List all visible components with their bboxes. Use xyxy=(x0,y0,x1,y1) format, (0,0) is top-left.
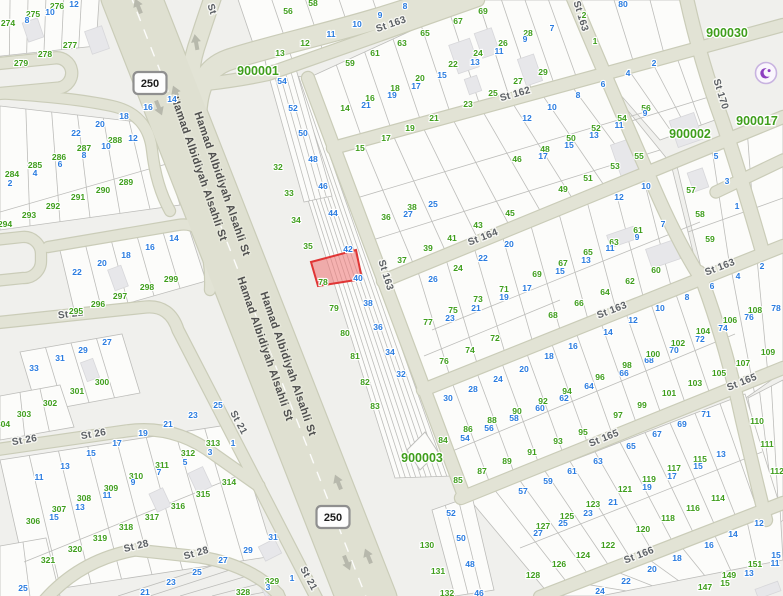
parcel-number-label: 13 xyxy=(275,48,285,58)
house-number-label: 71 xyxy=(701,409,711,419)
parcel-number-label: 25 xyxy=(488,88,498,98)
route-shield-label: 250 xyxy=(324,512,342,524)
house-number-label: 13 xyxy=(716,449,726,459)
house-number-label: 10 xyxy=(641,181,651,191)
parcel-number-label: 22 xyxy=(448,59,458,69)
parcel-number-label: 289 xyxy=(119,177,134,187)
parcel-number-label: 39 xyxy=(423,243,433,253)
parcel-number-label: 328 xyxy=(236,587,251,596)
house-number-label: 25 xyxy=(192,567,202,577)
parcel-number-label: 107 xyxy=(736,358,751,368)
house-number-label: 57 xyxy=(518,486,528,496)
house-number-label: 29 xyxy=(78,345,88,355)
house-number-label: 6 xyxy=(601,79,606,89)
parcel-number-label: 87 xyxy=(477,466,487,476)
house-number-label: 15 xyxy=(437,70,447,80)
parcel-number-label: 15 xyxy=(720,578,730,588)
parcel-number-label: 128 xyxy=(526,570,541,580)
parcel-number-label: 294 xyxy=(0,219,12,229)
house-number-label: 15 xyxy=(564,140,574,150)
house-number-label: 19 xyxy=(499,292,509,302)
parcel-number-label: 84 xyxy=(438,435,448,445)
parcel-number-label: 89 xyxy=(502,456,512,466)
parcel-number-label: 21 xyxy=(429,113,439,123)
house-number-label: 42 xyxy=(343,244,353,254)
parcel-number-label: 35 xyxy=(303,241,313,251)
house-number-label: 14 xyxy=(169,233,179,243)
parcel-number-label: 17 xyxy=(381,133,391,143)
house-number-label: 31 xyxy=(268,532,278,542)
parcel-number-label: 59 xyxy=(345,58,355,68)
zone-number-label: 900030 xyxy=(706,26,748,40)
house-number-label: 8 xyxy=(576,90,581,100)
house-number-label: 18 xyxy=(119,111,129,121)
house-number-label: 25 xyxy=(213,400,223,410)
parcel-number-label: 99 xyxy=(637,400,647,410)
parcel-number-label: 77 xyxy=(423,317,433,327)
parcel-number-label: 320 xyxy=(68,544,83,554)
house-number-label: 13 xyxy=(60,461,70,471)
parcel-number-label: 279 xyxy=(14,58,29,68)
parcel-number-label: 14 xyxy=(340,103,350,113)
house-number-label: 78 xyxy=(771,303,781,313)
house-number-label: 8 xyxy=(82,150,87,160)
parcel-number-label: 12 xyxy=(300,38,310,48)
parcel-number-label: 72 xyxy=(490,333,500,343)
parcel-number-label: 304 xyxy=(0,419,10,429)
house-number-label: 44 xyxy=(328,208,338,218)
house-number-label: 17 xyxy=(538,151,548,161)
mosque-icon-part xyxy=(768,69,771,72)
house-number-label: 11 xyxy=(494,46,503,56)
parcel-number-label: 53 xyxy=(610,161,620,171)
parcel-number-label: 106 xyxy=(723,315,738,325)
parcel-number-label: 43 xyxy=(473,220,483,230)
house-number-label: 1 xyxy=(231,438,236,448)
parcel-number-label: 318 xyxy=(119,522,134,532)
parcel-number-label: 80 xyxy=(340,328,350,338)
house-number-label: 34 xyxy=(385,347,395,357)
parcel-number-label: 293 xyxy=(22,210,37,220)
parcel-number-label: 68 xyxy=(548,310,558,320)
house-number-label: 6 xyxy=(58,159,63,169)
parcel-number-label: 131 xyxy=(431,566,446,576)
parcel-number-label: 81 xyxy=(350,351,360,361)
house-number-label: 10 xyxy=(655,303,665,313)
house-number-label: 13 xyxy=(75,502,85,512)
house-number-label: 36 xyxy=(373,322,383,332)
house-number-label: 40 xyxy=(353,273,363,283)
house-number-label: 16 xyxy=(145,242,155,252)
parcel-number-label: 114 xyxy=(711,493,725,503)
house-number-label: 65 xyxy=(626,441,636,451)
parcel-number-label: 2 xyxy=(582,10,587,20)
house-number-label: 23 xyxy=(188,410,198,420)
parcel-number-label: 94 xyxy=(562,386,572,396)
parcel-number-label: 290 xyxy=(96,185,111,195)
house-number-label: 52 xyxy=(446,508,456,518)
parcel-number-label: 63 xyxy=(397,38,407,48)
house-number-label: 24 xyxy=(493,374,503,384)
parcel-number-label: 86 xyxy=(463,424,473,434)
parcel-number-label: 37 xyxy=(397,255,407,265)
house-number-label: 9 xyxy=(131,477,136,487)
parcel-number-label: 1 xyxy=(593,36,598,46)
house-number-label: 18 xyxy=(121,250,131,260)
parcel-number-label: 316 xyxy=(171,501,186,511)
house-number-label: 14 xyxy=(167,94,177,104)
house-number-label: 23 xyxy=(166,577,176,587)
house-number-label: 21 xyxy=(608,497,618,507)
house-number-label: 21 xyxy=(163,419,173,429)
map-canvas[interactable]: St 163St 163St 162St 170St 164St 163St 1… xyxy=(0,0,783,596)
parcel-number-label: 66 xyxy=(574,298,584,308)
house-number-label: 9 xyxy=(378,10,383,20)
house-number-label: 69 xyxy=(677,419,687,429)
house-number-label: 3 xyxy=(208,447,213,457)
parcel-number-label: 122 xyxy=(601,540,616,550)
route-shield-label: 250 xyxy=(141,78,159,90)
house-number-label: 50 xyxy=(456,533,466,543)
house-number-label: 22 xyxy=(478,253,488,263)
mosque-icon-part xyxy=(764,68,773,77)
parcel-number-label: 15 xyxy=(355,143,365,153)
house-number-label: 27 xyxy=(533,528,543,538)
house-number-label: 48 xyxy=(308,154,318,164)
house-number-label: 10 xyxy=(101,141,111,151)
parcel-number-label: 298 xyxy=(140,282,155,292)
parcel-number-label: 41 xyxy=(447,233,457,243)
house-number-label: 25 xyxy=(18,583,28,593)
parcel-number-label: 292 xyxy=(46,201,61,211)
parcel-number-label: 92 xyxy=(538,396,548,406)
parcel-number-label: 58 xyxy=(308,0,318,8)
house-number-label: 12 xyxy=(614,192,624,202)
house-number-label: 11 xyxy=(34,472,43,482)
house-number-label: 15 xyxy=(693,461,703,471)
parcel-number-label: 321 xyxy=(41,555,56,565)
parcel-number-label: 45 xyxy=(505,208,515,218)
house-number-label: 8 xyxy=(685,292,690,302)
house-number-label: 46 xyxy=(474,588,484,596)
parcel-number-label: 82 xyxy=(360,377,370,387)
parcel-number-label: 24 xyxy=(453,263,463,273)
parcel-number-label: 317 xyxy=(145,512,160,522)
parcel-number-label: 277 xyxy=(63,40,78,50)
parcel-number-label: 83 xyxy=(370,401,380,411)
house-number-label: 12 xyxy=(69,0,79,9)
house-number-label: 33 xyxy=(29,363,39,373)
parcel-number-label: 112 xyxy=(770,466,783,476)
house-number-label: 67 xyxy=(652,429,662,439)
parcel-number-label: 116 xyxy=(686,503,700,513)
parcel-number-label: 132 xyxy=(440,588,455,596)
house-number-label: 52 xyxy=(288,103,298,113)
house-number-label: 27 xyxy=(218,555,228,565)
parcel-number-label: 74 xyxy=(465,345,475,355)
parcel-number-label: 69 xyxy=(532,269,542,279)
parcel-number-label: 90 xyxy=(512,406,522,416)
house-number-label: 2 xyxy=(652,58,657,68)
parcel-number-label: 121 xyxy=(618,484,633,494)
parcel-number-label: 46 xyxy=(512,154,522,164)
parcel-number-label: 315 xyxy=(196,489,211,499)
house-number-label: 54 xyxy=(460,433,470,443)
house-number-label: 5 xyxy=(183,457,188,467)
house-number-label: 10 xyxy=(352,19,362,29)
house-number-label: 16 xyxy=(568,341,578,351)
house-number-label: 9 xyxy=(635,232,640,242)
house-number-label: 24 xyxy=(595,586,605,596)
house-number-label: 2 xyxy=(760,261,765,271)
house-number-label: 11 xyxy=(326,29,335,39)
parcel-number-label: 111 xyxy=(760,439,774,449)
house-number-label: 59 xyxy=(543,476,553,486)
parcel-number-label: 78 xyxy=(318,277,328,287)
house-number-label: 2 xyxy=(8,178,13,188)
house-number-label: 20 xyxy=(519,364,529,374)
house-number-label: 8 xyxy=(25,15,30,25)
parcel-number-label: 306 xyxy=(26,516,41,526)
house-number-label: 15 xyxy=(555,266,565,276)
house-number-label: 20 xyxy=(504,239,514,249)
parcel-number-label: 105 xyxy=(712,368,727,378)
parcel-number-label: 32 xyxy=(273,162,283,172)
house-number-label: 32 xyxy=(396,369,406,379)
parcel-number-label: 98 xyxy=(622,360,632,370)
parcel-number-label: 110 xyxy=(750,416,764,426)
parcel-number-label: 130 xyxy=(420,540,435,550)
house-number-label: 17 xyxy=(522,283,532,293)
parcel-number-label: 102 xyxy=(671,338,686,348)
parcel-number-label: 79 xyxy=(329,303,339,313)
house-number-label: 31 xyxy=(55,353,65,363)
house-number-label: 17 xyxy=(411,81,421,91)
parcel-number-label: 34 xyxy=(291,215,301,225)
map-viewport[interactable]: St 163St 163St 162St 170St 164St 163St 1… xyxy=(0,0,783,596)
house-number-label: 22 xyxy=(621,576,631,586)
parcel-number-label: 108 xyxy=(748,305,763,315)
parcel-number-label: 314 xyxy=(222,477,237,487)
house-number-label: 4 xyxy=(736,271,741,281)
parcel-number-label: 299 xyxy=(164,274,179,284)
house-number-label: 9 xyxy=(643,108,648,118)
house-number-label: 12 xyxy=(128,133,138,143)
house-number-label: 38 xyxy=(363,298,373,308)
parcel-number-label: 95 xyxy=(578,427,588,437)
parcel-number-label: 104 xyxy=(696,326,711,336)
house-number-label: 25 xyxy=(428,199,438,209)
parcel-number-label: 126 xyxy=(552,559,567,569)
house-number-label: 19 xyxy=(138,428,148,438)
house-number-label: 5 xyxy=(714,151,719,161)
house-number-label: 14 xyxy=(728,529,738,539)
house-number-label: 17 xyxy=(112,438,122,448)
house-number-label: 21 xyxy=(140,587,150,596)
parcel-number-label: 57 xyxy=(686,185,696,195)
parcel-number-label: 296 xyxy=(91,299,106,309)
house-number-label: 30 xyxy=(443,393,453,403)
house-number-label: 21 xyxy=(361,100,371,110)
house-number-label: 20 xyxy=(95,119,105,129)
house-number-label: 15 xyxy=(86,448,96,458)
house-number-label: 8 xyxy=(403,1,408,11)
parcel-number-label: 23 xyxy=(463,99,473,109)
house-number-label: 13 xyxy=(744,568,754,578)
parcel-number-label: 118 xyxy=(661,513,675,523)
parcel-number-label: 100 xyxy=(646,349,661,359)
parcel-number-label: 76 xyxy=(439,356,449,366)
house-number-label: 11 xyxy=(614,120,623,130)
house-number-label: 19 xyxy=(387,90,397,100)
house-number-label: 25 xyxy=(558,518,568,528)
house-number-label: 27 xyxy=(403,209,413,219)
parcel-number-label: 96 xyxy=(595,372,605,382)
house-number-label: 10 xyxy=(547,102,557,112)
house-number-label: 1 xyxy=(290,573,295,583)
parcel-number-label: 55 xyxy=(634,151,644,161)
house-number-label: 10 xyxy=(45,7,55,17)
parcel-number-label: 29 xyxy=(538,67,548,77)
parcel-number-label: 97 xyxy=(613,410,623,420)
parcel-number-label: 60 xyxy=(651,265,661,275)
parcel-number-label: 303 xyxy=(17,409,32,419)
parcel-number-label: 93 xyxy=(553,436,563,446)
parcel-number-label: 61 xyxy=(370,48,380,58)
parcel-number-label: 67 xyxy=(453,16,463,26)
parcel-number-label: 291 xyxy=(71,192,86,202)
parcel-number-label: 58 xyxy=(695,209,705,219)
house-number-label: 15 xyxy=(49,512,59,522)
zone-number-label: 900002 xyxy=(669,127,711,141)
house-number-label: 4 xyxy=(33,168,38,178)
house-number-label: 28 xyxy=(468,384,478,394)
parcel-number-label: 101 xyxy=(662,388,677,398)
house-number-label: 22 xyxy=(72,267,82,277)
house-number-label: 13 xyxy=(470,57,480,67)
parcel-number-label: 302 xyxy=(43,398,58,408)
parcel-number-label: 103 xyxy=(688,378,703,388)
house-number-label: 22 xyxy=(71,128,81,138)
parcel-number-label: 319 xyxy=(93,533,108,543)
house-number-label: 50 xyxy=(298,128,308,138)
house-number-label: 23 xyxy=(583,508,593,518)
parcel-number-label: 36 xyxy=(381,212,391,222)
house-number-label: 23 xyxy=(445,313,455,323)
house-number-label: 48 xyxy=(465,559,475,569)
parcel-number-label: 19 xyxy=(405,123,415,133)
house-number-label: 21 xyxy=(471,303,481,313)
house-number-label: 13 xyxy=(581,255,591,265)
house-number-label: 27 xyxy=(102,337,112,347)
parcel-number-label: 91 xyxy=(527,447,537,457)
parcel-number-label: 88 xyxy=(487,415,497,425)
house-number-label: 17 xyxy=(667,471,677,481)
parcel-number-label: 295 xyxy=(69,306,84,316)
house-number-label: 7 xyxy=(661,219,666,229)
parcel-number-label: 297 xyxy=(113,291,128,301)
house-number-label: 9 xyxy=(523,34,528,44)
house-number-label: 3 xyxy=(266,582,271,592)
house-number-label: 7 xyxy=(550,23,555,33)
house-number-label: 6 xyxy=(710,281,715,291)
house-number-label: 16 xyxy=(143,102,153,112)
house-number-label: 29 xyxy=(243,545,253,555)
parcel-number-label: 147 xyxy=(698,582,713,592)
house-number-label: 19 xyxy=(642,482,652,492)
house-number-label: 80 xyxy=(618,0,628,9)
house-number-label: 12 xyxy=(522,113,532,123)
zone-number-label: 900001 xyxy=(237,64,279,78)
house-number-label: 11 xyxy=(102,490,111,500)
house-number-label: 18 xyxy=(672,553,682,563)
house-number-label: 64 xyxy=(584,381,594,391)
parcel-number-label: 124 xyxy=(576,550,591,560)
house-number-label: 11 xyxy=(605,243,614,253)
parcel-number-label: 27 xyxy=(513,76,523,86)
house-number-label: 13 xyxy=(589,130,599,140)
parcel-number-label: 64 xyxy=(600,287,610,297)
house-number-label: 14 xyxy=(603,327,613,337)
parcel-number-label: 33 xyxy=(284,188,294,198)
parcel-number-label: 65 xyxy=(420,28,430,38)
parcel-number-label: 62 xyxy=(625,276,635,286)
house-number-label: 15 xyxy=(771,550,781,560)
house-number-label: 63 xyxy=(593,456,603,466)
parcel-number-label: 301 xyxy=(70,386,85,396)
parcel-number-label: 49 xyxy=(558,184,568,194)
zone-number-label: 900003 xyxy=(401,451,443,465)
house-number-label: 12 xyxy=(628,315,638,325)
parcel-number-label: 274 xyxy=(1,18,16,28)
parcel-number-label: 56 xyxy=(283,6,293,16)
zone-number-label: 900017 xyxy=(736,114,778,128)
parcel-number-label: 120 xyxy=(636,524,651,534)
house-number-label: 20 xyxy=(647,564,657,574)
house-number-label: 12 xyxy=(754,518,764,528)
parcel-number-label: 69 xyxy=(478,6,488,16)
mosque-poi-icon[interactable] xyxy=(756,63,777,84)
house-number-label: 4 xyxy=(626,68,631,78)
house-number-label: 1 xyxy=(735,201,740,211)
house-number-label: 26 xyxy=(428,274,438,284)
parcel-number-label: 59 xyxy=(705,234,715,244)
house-number-label: 20 xyxy=(97,258,107,268)
house-number-label: 7 xyxy=(157,467,162,477)
house-number-label: 16 xyxy=(704,540,714,550)
house-number-label: 3 xyxy=(725,176,730,186)
house-number-label: 18 xyxy=(544,351,554,361)
parcel-number-label: 300 xyxy=(95,377,110,387)
parcel-number-label: 51 xyxy=(583,173,593,183)
parcel-number-label: 85 xyxy=(453,475,463,485)
house-number-label: 61 xyxy=(567,466,577,476)
parcel-number-label: 109 xyxy=(761,347,776,357)
house-number-label: 46 xyxy=(318,181,328,191)
parcel-number-label: 278 xyxy=(38,49,53,59)
